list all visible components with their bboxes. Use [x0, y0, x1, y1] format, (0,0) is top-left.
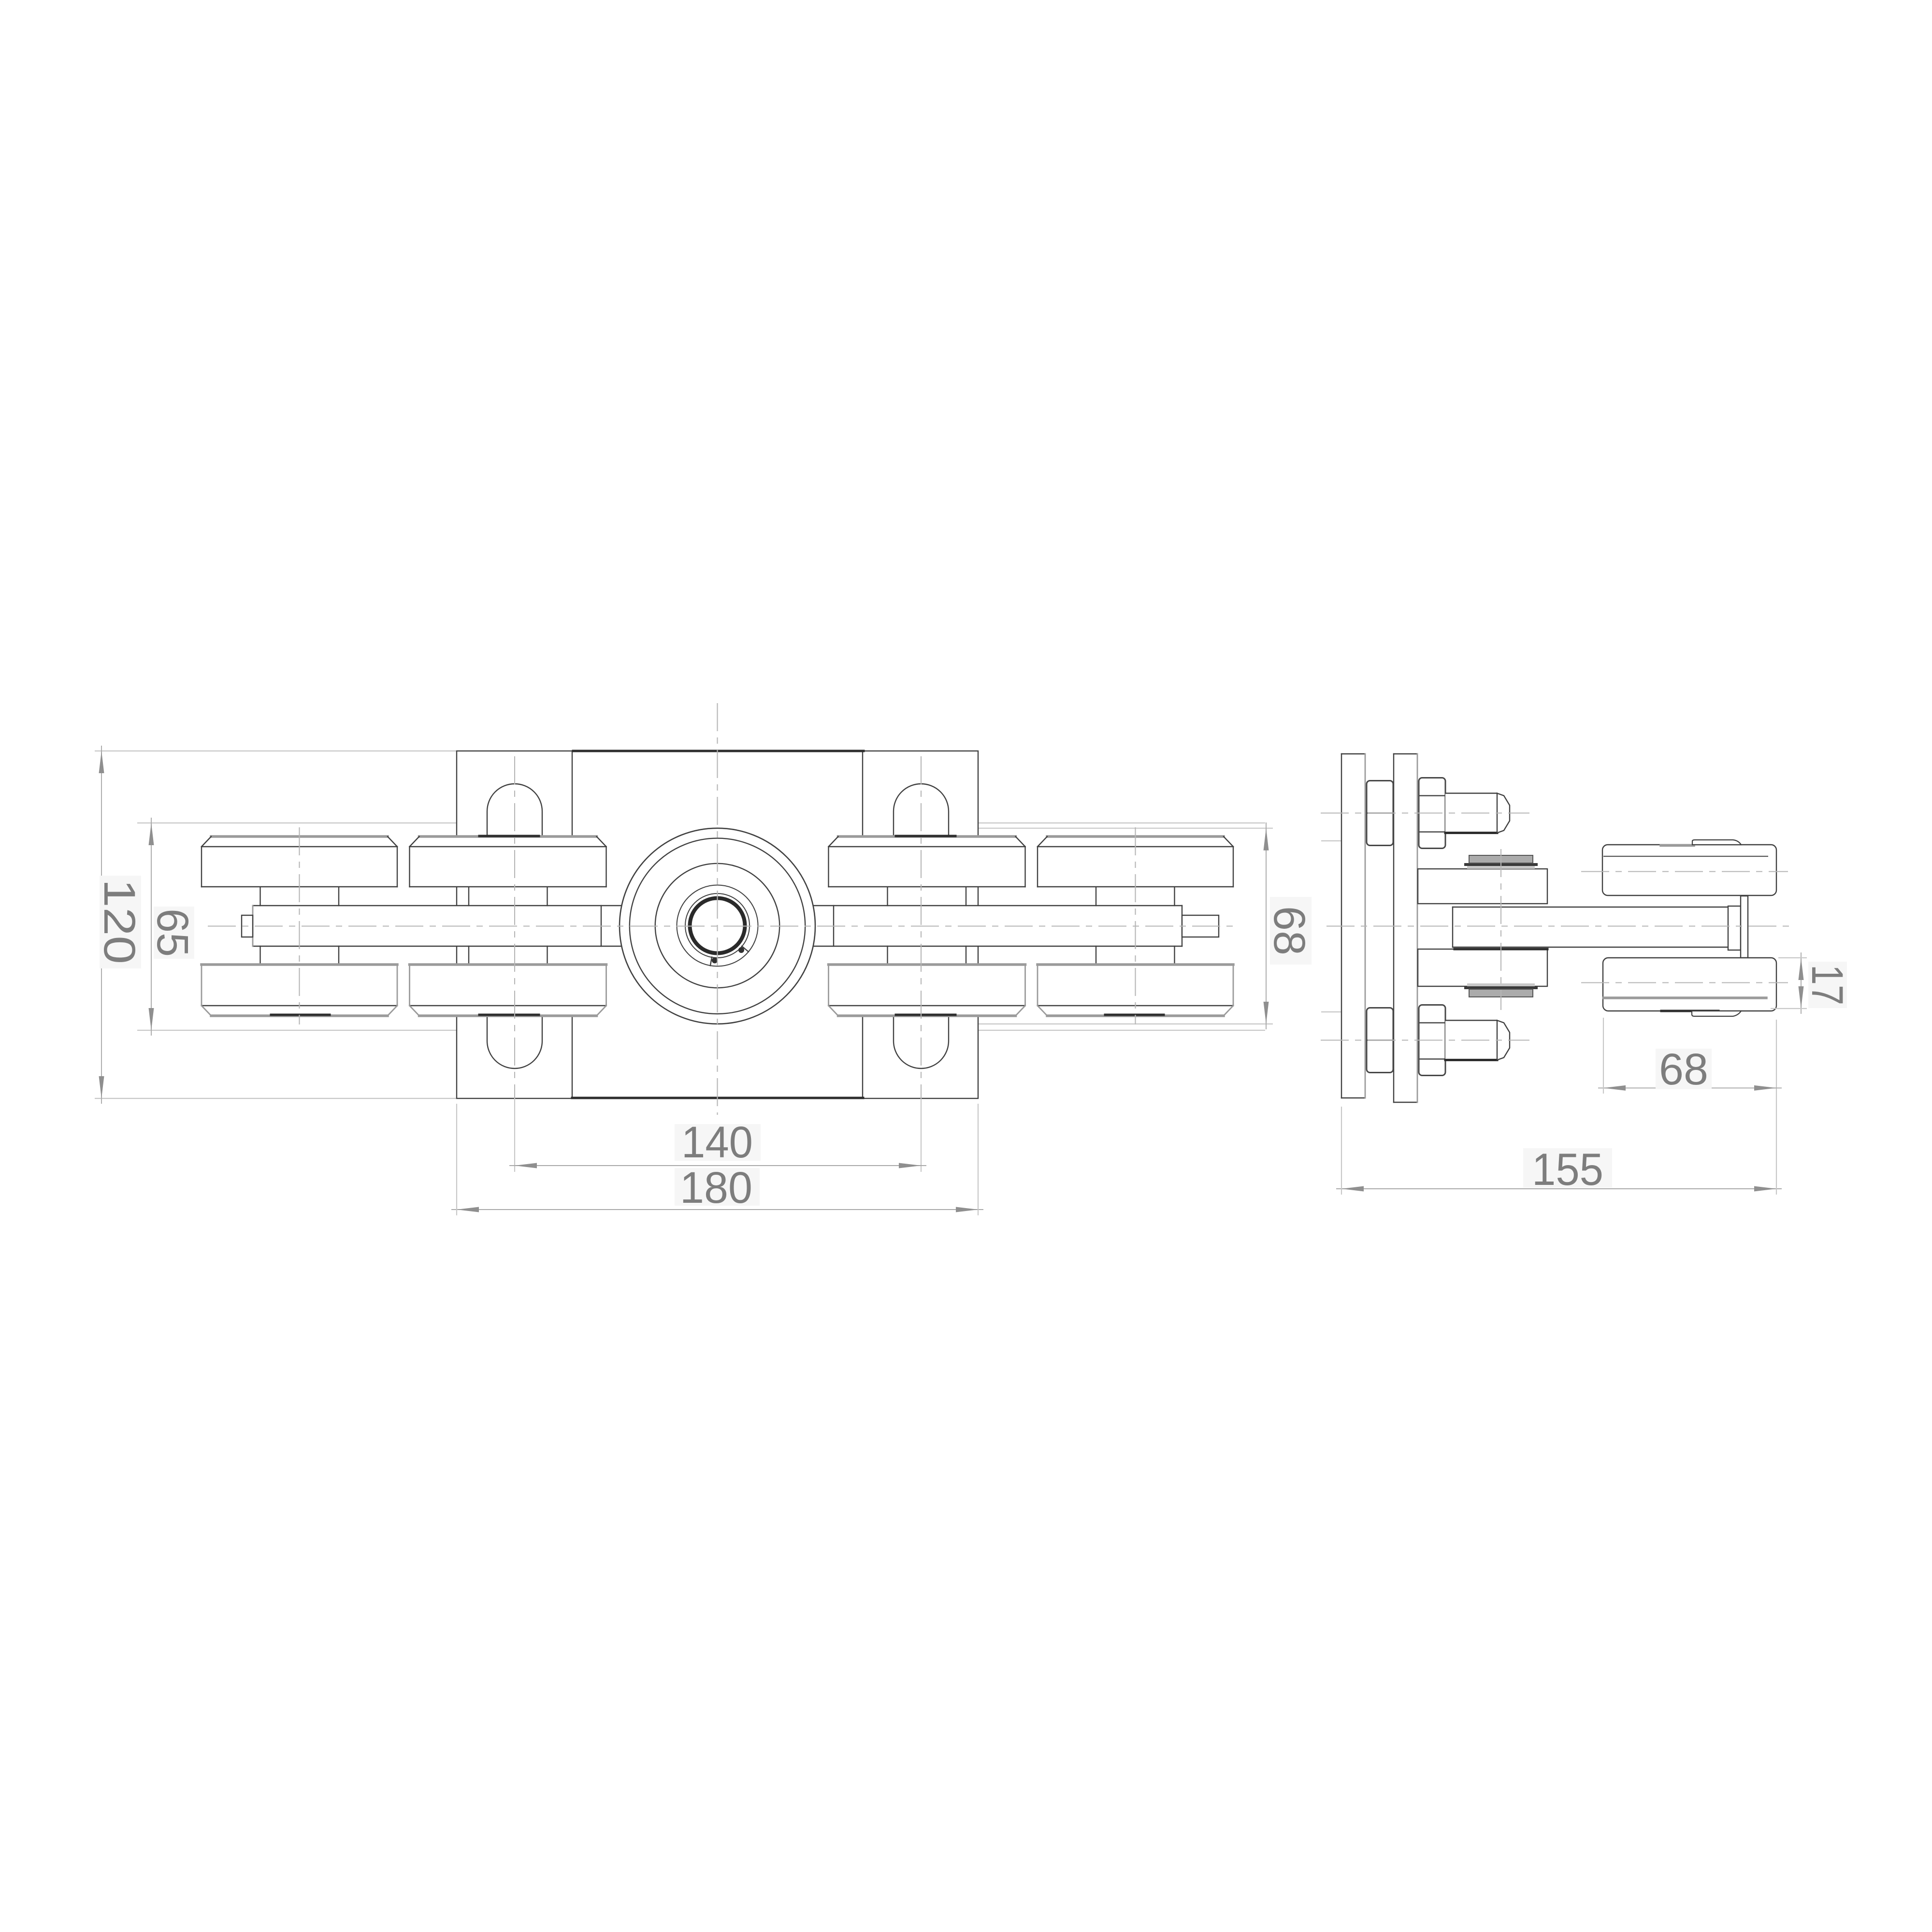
- svg-text:140: 140: [681, 1118, 753, 1167]
- svg-text:120: 120: [95, 879, 144, 964]
- svg-text:17: 17: [1802, 965, 1852, 1005]
- svg-text:65: 65: [148, 908, 197, 957]
- svg-text:68: 68: [1265, 906, 1314, 955]
- svg-text:180: 180: [680, 1163, 752, 1212]
- svg-text:68: 68: [1659, 1045, 1708, 1094]
- svg-text:155: 155: [1532, 1144, 1603, 1195]
